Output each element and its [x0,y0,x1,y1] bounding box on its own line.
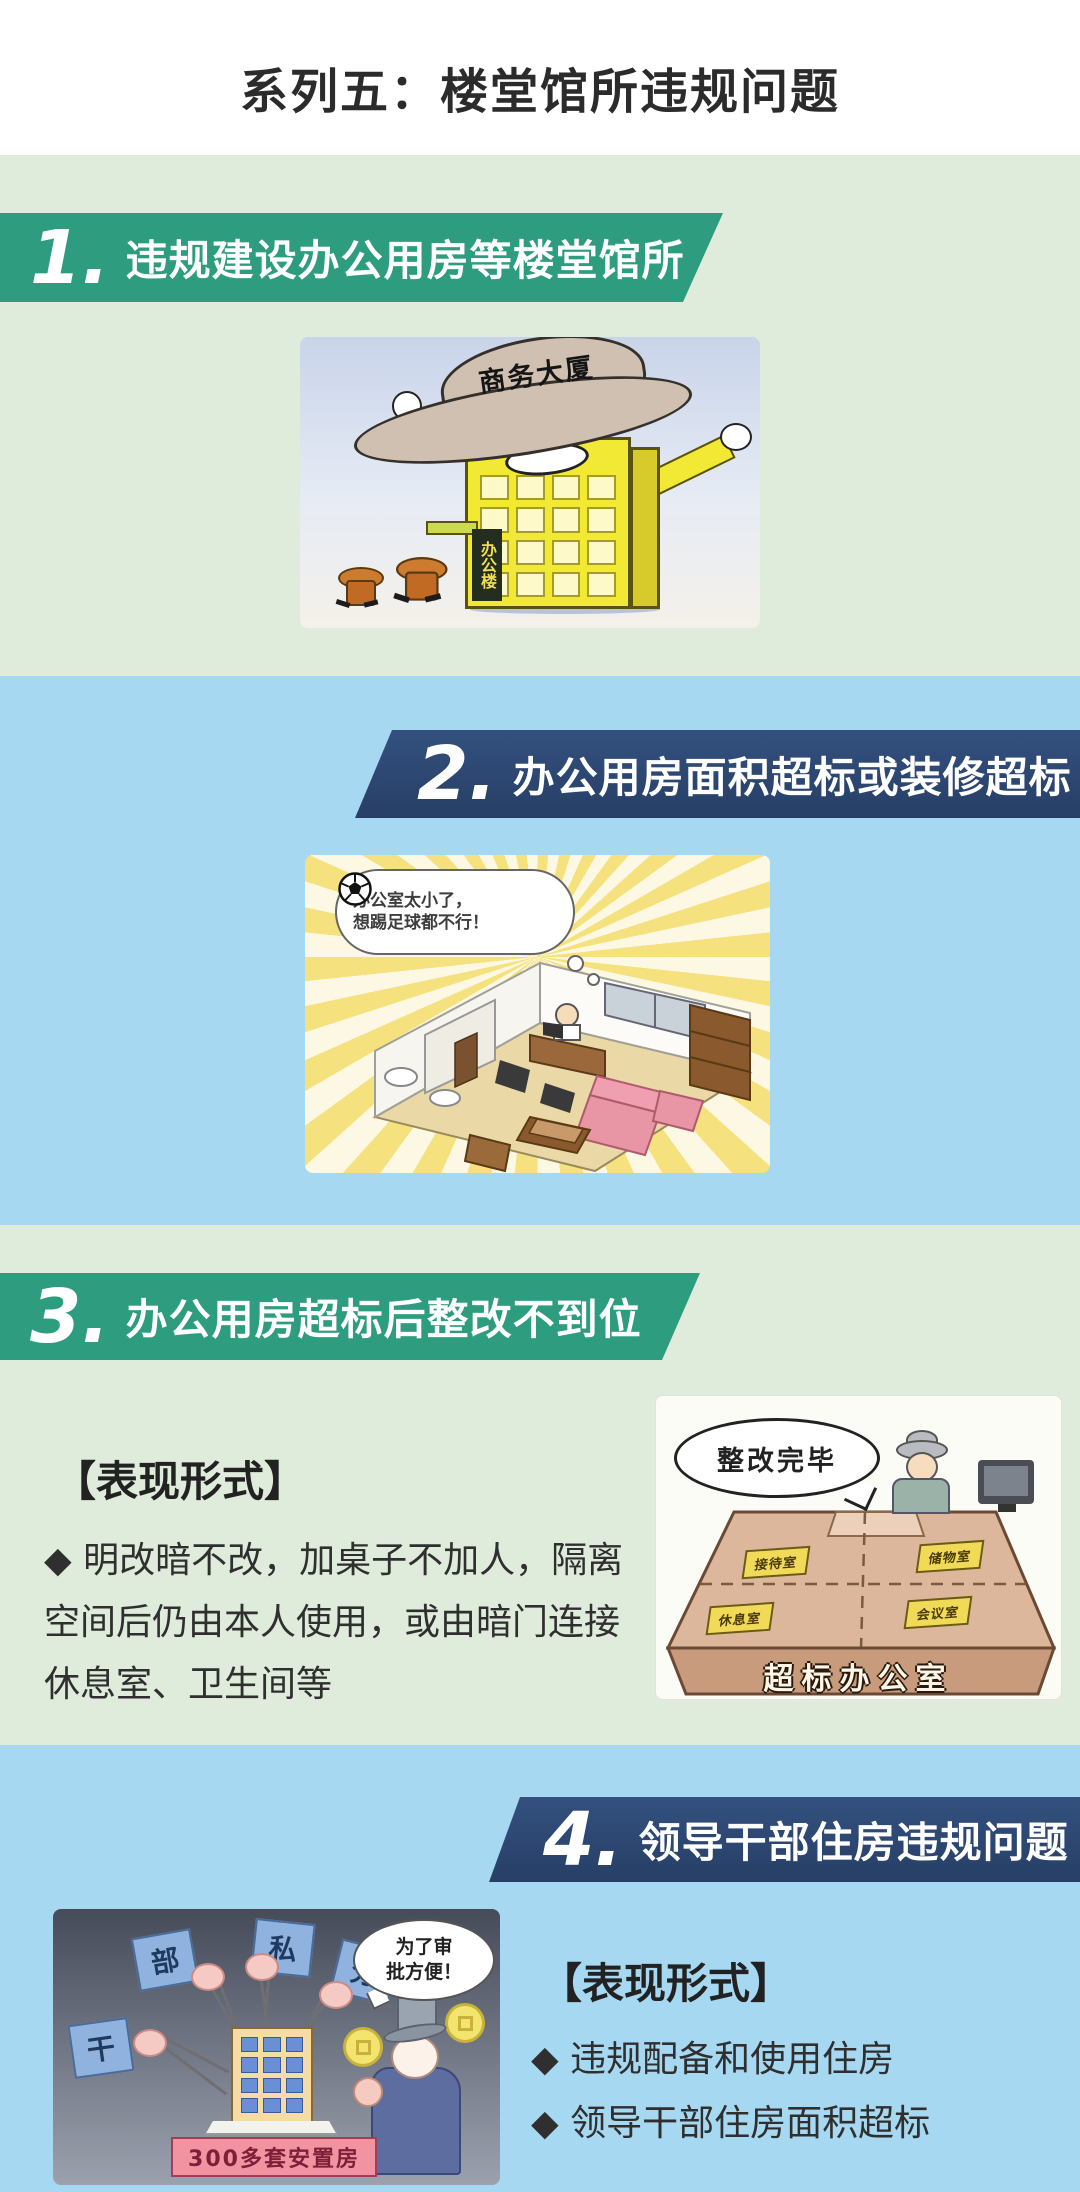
room-sign-lounge: 休息室 [706,1602,775,1635]
infographic-page: 系列五：楼堂馆所违规问题 1. 违规建设办公用房等楼堂馆所 商务大厦 办公楼 [0,0,1080,2192]
apartment-window-grid [241,2037,303,2113]
section-1-banner: 1. 违规建设办公用房等楼堂馆所 [0,213,723,302]
hand-shape [191,1963,225,1991]
housing-division-illustration: 干 部 私 分 300多套安置房 为了审 批方便！ [53,1909,500,2185]
soccer-ball-icon [337,871,373,907]
flag-gan: 干 [68,2017,135,2079]
section-4-number: 4. [543,1803,623,1877]
speech-bubble-dot [567,955,584,972]
thumbs-up-hand-shape [353,2077,383,2107]
speech-line-1: 办公室太小了， [353,890,489,912]
room-sign-reception: 接待室 [742,1546,811,1579]
coin-icon [343,2027,383,2067]
flag-bu: 部 [131,1928,199,1992]
section-4-bullet-2: ◆ 领导干部住房面积超标 [531,2094,930,2146]
speech-line-2: 批方便！ [386,1960,462,1985]
section-2-heading: 办公用房面积超标或装修超标 [513,744,1072,805]
building-with-hat-illustration: 商务大厦 办公楼 [300,337,760,628]
section-3-subheading: 【表现形式】 [54,1448,306,1509]
rectified-desk-illustration: 整改完毕 接待室 储物室 休息室 会议室 超标办公室 [655,1395,1062,1700]
section-2-banner: 2. 办公用房面积超标或装修超标 [355,730,1080,818]
section-4-bullet-1: ◆ 违规配备和使用住房 [531,2030,894,2082]
room-sign-meeting: 会议室 [904,1596,973,1629]
speech-bubble: 为了审 批方便！ [353,1919,495,2001]
apartment-building-icon [231,2027,313,2123]
entrance-awning-shape [426,521,478,535]
hand-shape [319,1981,353,2009]
speech-bubble-dot [587,973,600,986]
section-4-heading: 领导干部住房违规问题 [639,1809,1069,1870]
speech-bubble: 整改完毕 [674,1418,880,1498]
section-1-number: 1. [30,221,110,295]
speech-line-2: 想踢足球都不行！ [353,912,489,934]
monitor-stand-shape [998,1504,1016,1512]
section-2-number: 2. [417,737,497,811]
hand-shape [245,1953,279,1981]
section-3-banner: 3. 办公用房超标后整改不到位 [0,1273,700,1360]
page-title: 系列五：楼堂馆所违规问题 [0,52,1080,122]
office-building-side-shape [630,447,660,609]
section-3-heading: 办公用房超标后整改不到位 [126,1286,642,1347]
section-3-number: 3. [30,1280,110,1354]
building-pedestal-shape [205,2121,337,2135]
section-3-bullet: ◆ 明改暗不改，加桌子不加人，隔离空间后仍由本人使用，或由暗门连接休息室、卫生间… [44,1530,634,1716]
bookshelf [690,1005,750,1100]
desk-front-label: 超标办公室 [656,1654,1061,1698]
speech-line-1: 为了审 [395,1935,452,1960]
coin-icon [445,2003,485,2043]
oversized-office-illustration: 办公室太小了， 想踢足球都不行！ [305,855,770,1173]
monitor-screen-shape [984,1466,1028,1496]
room-sign-storage: 储物室 [916,1540,985,1573]
office-building-vertical-sign: 办公楼 [472,529,502,601]
speech-bubble: 办公室太小了， 想踢足球都不行！ [335,869,575,955]
building-right-glove-shape [720,423,752,451]
resettlement-housing-banner: 300多套安置房 [171,2137,377,2177]
section-1-heading: 违规建设办公用房等楼堂馆所 [126,227,685,288]
section-4-subheading: 【表现形式】 [540,1950,792,2011]
official-body-shape [892,1478,950,1514]
section-4-banner: 4. 领导干部住房违规问题 [489,1797,1080,1882]
hand-shape [133,2029,167,2057]
official-body-shape [371,2067,461,2175]
